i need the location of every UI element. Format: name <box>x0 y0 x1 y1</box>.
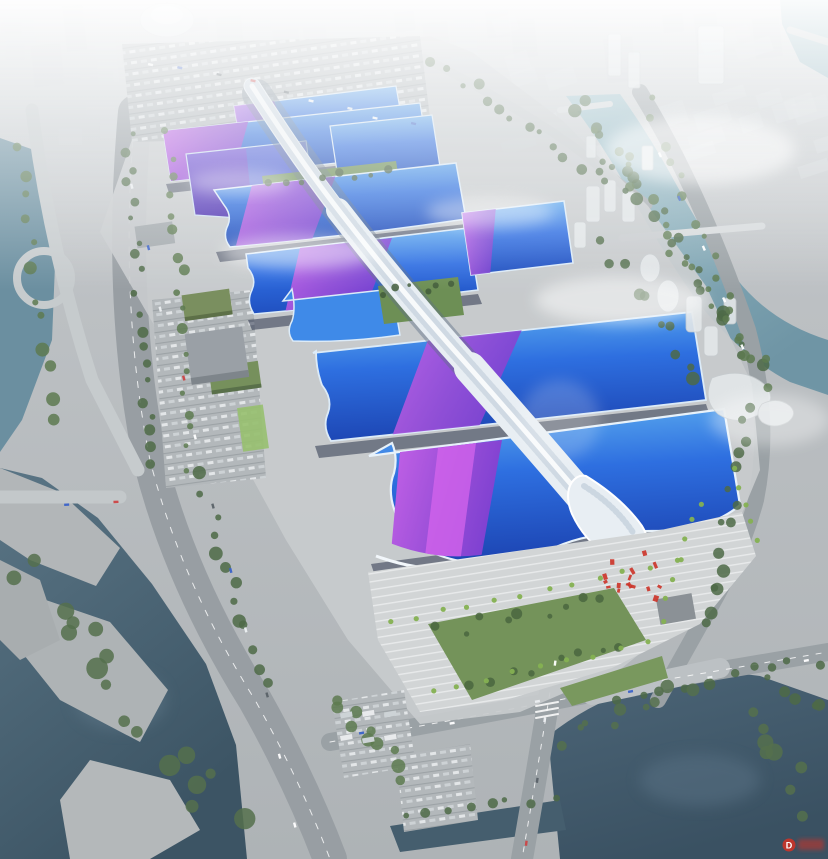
tree <box>488 798 498 808</box>
south-parking-lot <box>396 744 478 832</box>
palm-tree <box>743 502 748 507</box>
tree <box>130 290 137 297</box>
watermark-text-blur <box>798 839 824 850</box>
tree <box>145 377 150 382</box>
palm-tree <box>590 655 595 660</box>
tree <box>563 604 569 610</box>
tree <box>725 307 733 315</box>
tree <box>231 577 242 588</box>
tree <box>234 808 255 829</box>
tree <box>582 720 588 726</box>
tree <box>395 776 405 786</box>
tree <box>263 678 273 688</box>
tree <box>209 547 223 561</box>
tree <box>184 368 190 374</box>
tree <box>184 468 190 474</box>
tree <box>746 354 755 363</box>
tree <box>718 519 725 526</box>
palm-tree <box>699 502 704 507</box>
tree <box>764 674 770 680</box>
palm-tree <box>431 688 436 693</box>
tree <box>658 321 665 328</box>
red-sculpture <box>610 559 614 565</box>
tree <box>731 669 739 677</box>
tree <box>783 657 790 664</box>
tree <box>687 683 700 696</box>
tree <box>511 608 522 619</box>
tree <box>46 392 60 406</box>
palm-tree <box>517 594 522 599</box>
tree <box>193 466 206 479</box>
tree <box>180 305 185 310</box>
tree <box>724 486 730 492</box>
palm-tree <box>732 466 737 471</box>
tree <box>220 562 231 573</box>
tree <box>254 664 265 675</box>
tree <box>331 702 343 714</box>
tree <box>45 360 56 371</box>
tree <box>145 459 155 469</box>
tree <box>762 355 770 363</box>
tree <box>444 807 451 814</box>
palm-tree <box>547 586 552 591</box>
tree <box>185 411 194 420</box>
tree <box>430 622 439 631</box>
palm-tree <box>569 582 574 587</box>
tree <box>665 321 674 330</box>
tree <box>420 808 430 818</box>
watermark-letter: D <box>786 841 793 851</box>
palm-tree <box>441 607 446 612</box>
tree <box>816 661 825 670</box>
tree <box>346 721 358 733</box>
tree <box>139 342 148 351</box>
tree <box>643 704 650 711</box>
palm-tree <box>464 605 469 610</box>
tree <box>601 648 606 653</box>
palm-tree <box>620 569 625 574</box>
tree <box>32 299 38 305</box>
aerial-rendering: D <box>0 0 828 859</box>
tree <box>502 797 507 802</box>
tree <box>138 398 148 408</box>
tree <box>614 703 626 715</box>
palm-tree <box>663 596 668 601</box>
tree <box>7 570 22 585</box>
tree <box>785 785 795 795</box>
tree <box>205 769 215 779</box>
tree <box>709 303 715 309</box>
palm-tree <box>484 678 489 683</box>
tree <box>649 697 659 707</box>
vehicle <box>113 501 118 504</box>
tree <box>758 724 768 734</box>
palm-tree <box>388 619 393 624</box>
tree <box>768 663 776 671</box>
tree <box>557 741 567 751</box>
tree <box>711 583 724 596</box>
tree <box>528 670 534 676</box>
tree <box>789 693 801 705</box>
tree <box>733 501 742 510</box>
tree <box>101 679 111 689</box>
tree <box>391 746 399 754</box>
pond-reflection <box>640 754 760 806</box>
tree <box>118 715 130 727</box>
tree <box>131 726 143 738</box>
tree <box>717 564 730 577</box>
tree <box>35 343 49 357</box>
tree <box>579 593 588 602</box>
tree <box>144 424 155 435</box>
tree <box>736 333 744 341</box>
palm-tree <box>755 538 760 543</box>
tree <box>99 649 114 664</box>
tree <box>150 414 156 420</box>
palm-tree <box>689 517 694 522</box>
tree <box>184 352 189 357</box>
palm-tree <box>736 485 741 490</box>
tree <box>391 759 405 773</box>
tree <box>48 414 60 426</box>
palm-tree <box>661 619 666 624</box>
tree <box>196 491 203 498</box>
tree <box>704 678 716 690</box>
palm-tree <box>648 565 653 570</box>
tree <box>813 699 825 711</box>
tree <box>702 618 711 627</box>
tree <box>640 692 647 699</box>
tree <box>733 447 744 458</box>
tree <box>230 598 237 605</box>
tree <box>464 681 474 691</box>
scene-canvas: D <box>0 0 828 859</box>
tree <box>670 350 680 360</box>
tree <box>248 645 257 654</box>
tree <box>173 289 180 296</box>
tree <box>28 554 41 567</box>
tree <box>766 743 783 760</box>
palm-tree <box>538 663 543 668</box>
tree <box>184 443 189 448</box>
palm-tree <box>492 598 497 603</box>
tree <box>763 383 772 392</box>
tree <box>380 292 386 298</box>
tree <box>186 800 199 813</box>
tree <box>686 372 700 386</box>
tree <box>475 613 483 621</box>
tree <box>661 680 675 694</box>
tree <box>687 364 694 371</box>
red-sculpture <box>617 583 621 588</box>
tree <box>611 722 619 730</box>
tree <box>526 799 535 808</box>
tree <box>553 795 560 802</box>
tree <box>705 607 718 620</box>
tree <box>547 614 552 619</box>
palm-tree <box>454 684 459 689</box>
tree <box>187 423 193 429</box>
tree <box>726 518 736 528</box>
tree <box>215 514 221 520</box>
tree <box>137 327 148 338</box>
tree <box>595 594 603 602</box>
tree <box>145 441 156 452</box>
tree <box>61 625 77 641</box>
tree <box>464 631 469 636</box>
tree <box>211 532 218 539</box>
tree <box>558 655 564 661</box>
tree <box>779 686 790 697</box>
tree <box>188 776 206 794</box>
watermark: D <box>783 839 825 852</box>
tree <box>748 707 758 717</box>
tree <box>159 755 180 776</box>
tree <box>467 803 476 812</box>
palm-tree <box>679 557 684 562</box>
tree <box>177 323 188 334</box>
palm-tree <box>598 576 603 581</box>
tree <box>505 616 512 623</box>
tree <box>143 359 151 367</box>
palm-tree <box>510 669 515 674</box>
tree <box>37 312 44 319</box>
tree <box>88 622 103 637</box>
tree <box>574 648 582 656</box>
tree <box>750 662 758 670</box>
palm-tree <box>748 519 753 524</box>
tree <box>713 548 724 559</box>
vehicle <box>64 503 69 506</box>
palm-tree <box>670 577 675 582</box>
palm-tree <box>682 536 687 541</box>
tree <box>722 315 729 322</box>
palm-tree <box>564 657 569 662</box>
tree <box>178 747 195 764</box>
palm-tree <box>618 645 623 650</box>
palm-tree <box>414 616 419 621</box>
tree <box>727 292 734 299</box>
tree <box>403 813 409 819</box>
tree <box>136 311 142 317</box>
palm-tree <box>645 639 650 644</box>
tree <box>797 811 808 822</box>
tree <box>180 390 185 395</box>
tree <box>795 762 807 774</box>
